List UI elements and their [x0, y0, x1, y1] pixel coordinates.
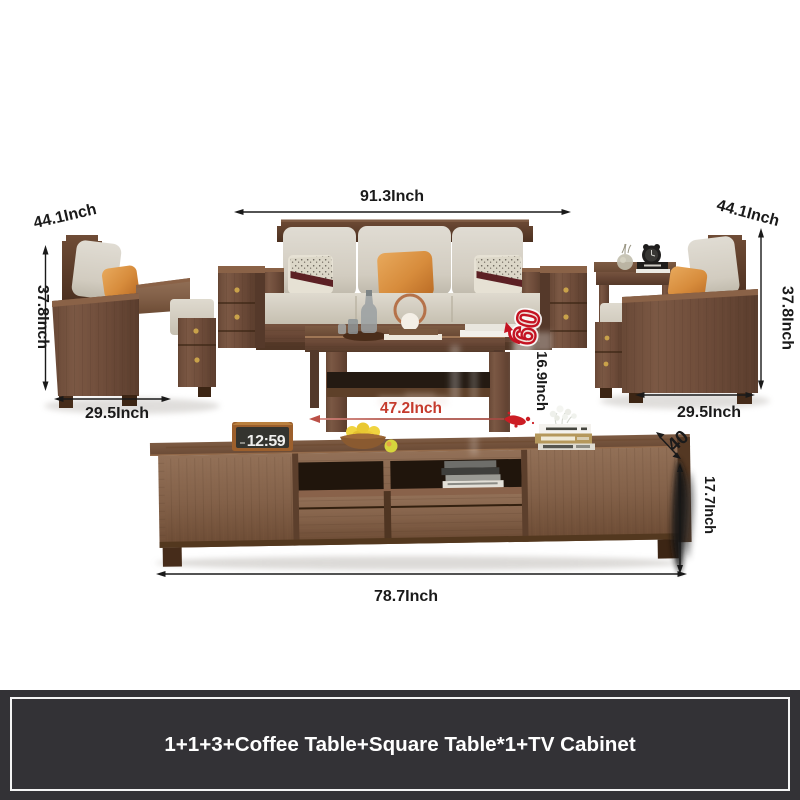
svg-text:29.5Inch: 29.5Inch [677, 404, 741, 421]
svg-text:91.3Inch: 91.3Inch [360, 188, 424, 205]
svg-text:37.8Inch: 37.8Inch [34, 285, 51, 349]
svg-text:12:59: 12:59 [247, 433, 286, 450]
svg-text:29.5Inch: 29.5Inch [85, 405, 149, 422]
svg-text:17.7Inch: 17.7Inch [701, 476, 717, 534]
svg-text:78.7Inch: 78.7Inch [374, 588, 438, 605]
svg-text:16.9Inch: 16.9Inch [533, 351, 550, 411]
svg-text:60: 60 [506, 307, 547, 348]
svg-text:37.8Inch: 37.8Inch [779, 286, 796, 350]
svg-text:1+1+3+Coffee Table+Square Tabl: 1+1+3+Coffee Table+Square Table*1+TV Cab… [164, 733, 636, 756]
svg-text:47.2Inch: 47.2Inch [380, 400, 442, 417]
